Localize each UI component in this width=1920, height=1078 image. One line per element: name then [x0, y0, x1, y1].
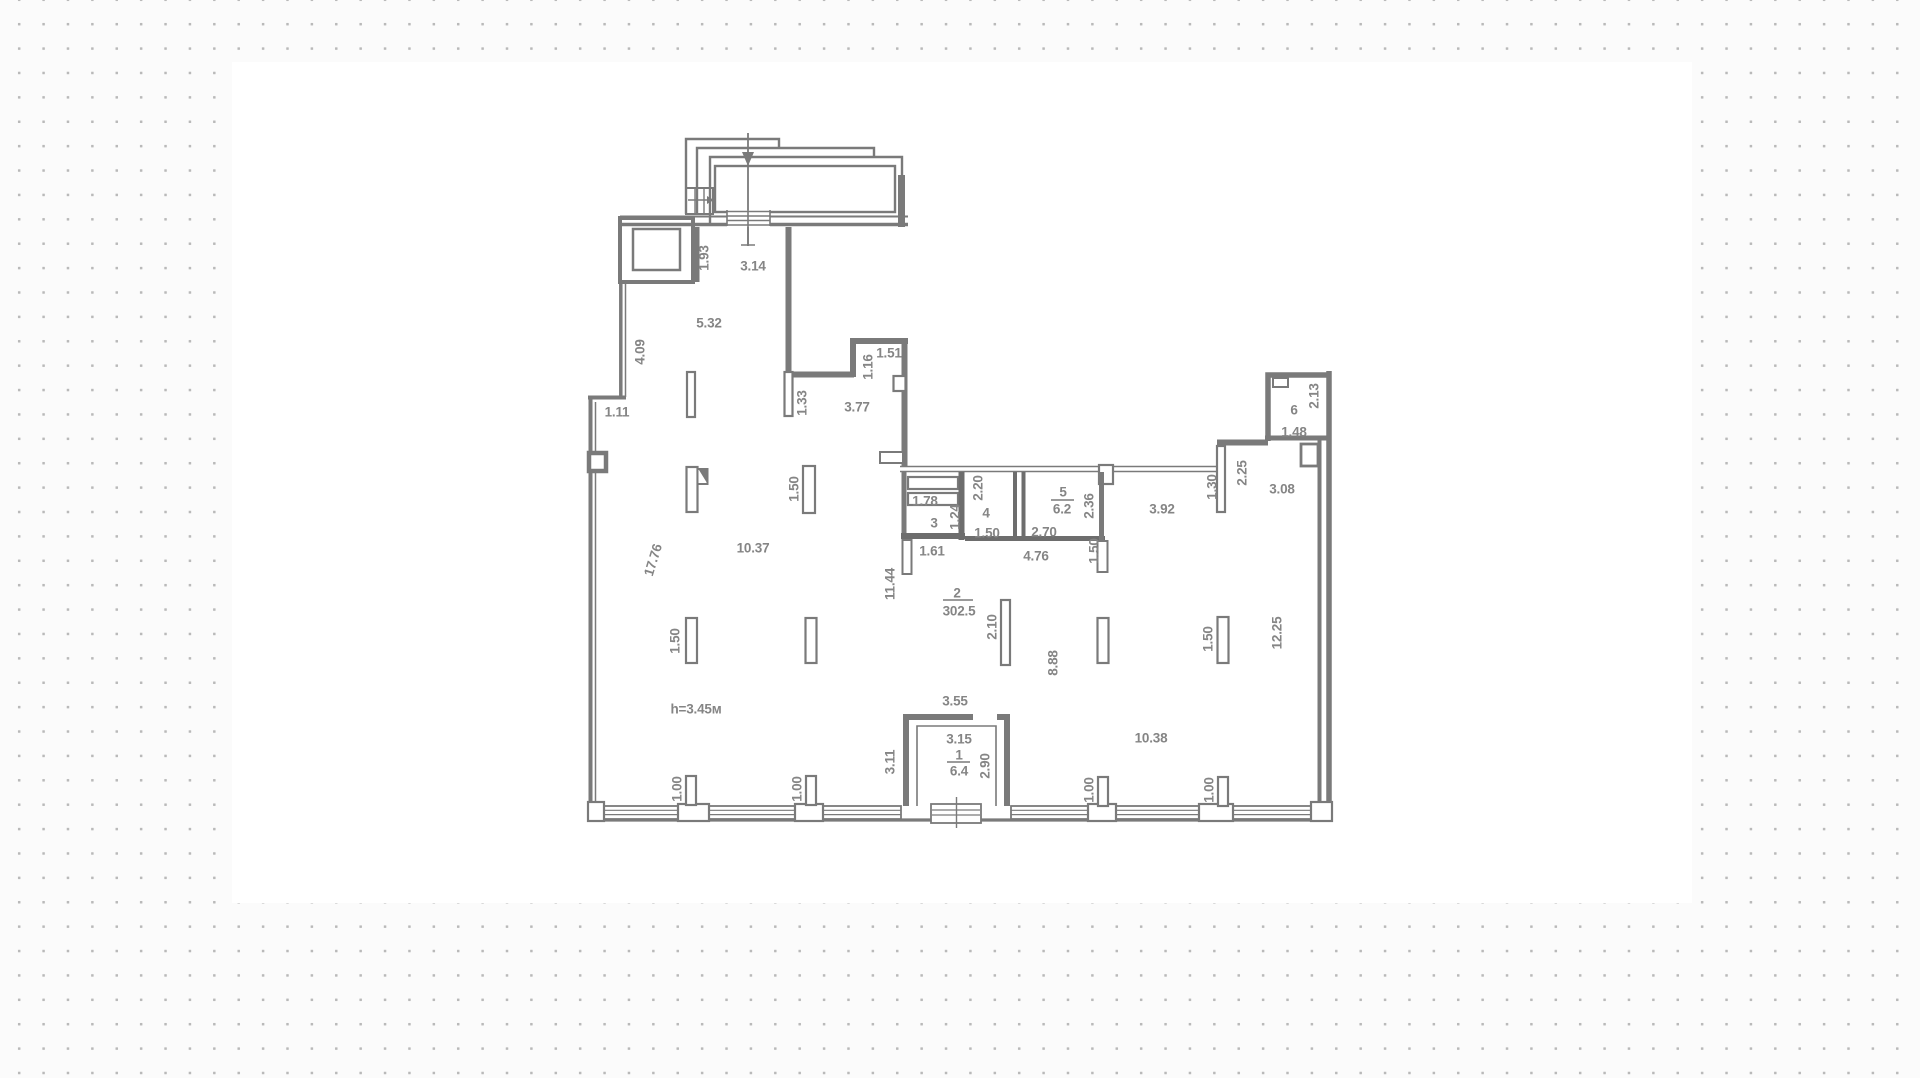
- dimension-label: 10.38: [1135, 731, 1168, 746]
- room-number-label: 2: [953, 586, 960, 601]
- dimension-label: 1.50: [1201, 626, 1216, 651]
- room-number-label: 1: [955, 748, 963, 763]
- height-label: h=3.45м: [671, 702, 722, 717]
- column: [1218, 617, 1229, 663]
- dimension-label: 2.70: [1031, 525, 1056, 540]
- top-window: [727, 210, 770, 246]
- dimension-label: 1.11: [605, 405, 630, 420]
- dimension-label: 3.11: [883, 749, 898, 774]
- dimension-label: 1.00: [1082, 777, 1097, 802]
- dimension-label: 1.93: [697, 245, 712, 271]
- entry-door: [931, 797, 981, 828]
- dimension-label: 1.50: [668, 628, 683, 653]
- dimension-label: 1.30: [1205, 474, 1220, 499]
- dimension-label: 8.88: [1046, 650, 1061, 676]
- vent-box: [1273, 378, 1288, 387]
- dimension-label: 1.24: [948, 504, 963, 530]
- column: [1098, 618, 1109, 663]
- dimension-label: 2.13: [1307, 383, 1322, 409]
- column: [687, 467, 698, 512]
- shaft-box: [620, 218, 693, 282]
- dimension-label: 1.33: [795, 390, 810, 416]
- dimension-label: 1.00: [1202, 777, 1217, 802]
- column: [903, 540, 912, 574]
- dimension-label: 11.44: [883, 567, 898, 600]
- dimension-label: 4.09: [633, 339, 648, 364]
- dimension-label: 1.16: [861, 354, 876, 380]
- room-area-label: 302.5: [943, 604, 976, 619]
- dimension-label: 10.37: [737, 541, 770, 556]
- room-number-label: 4: [982, 506, 990, 521]
- column: [806, 776, 816, 805]
- dimension-label: 3.08: [1269, 482, 1295, 497]
- column: [686, 776, 696, 805]
- dimension-label: 1.51: [876, 346, 902, 361]
- room-area-label: 1.48: [1281, 425, 1307, 440]
- dimension-label: 4.76: [1023, 549, 1049, 564]
- column: [687, 372, 695, 417]
- room-area-label: 6.4: [950, 764, 969, 779]
- room-number-label: 6: [1290, 403, 1298, 418]
- room-area-label: 6.2: [1053, 502, 1071, 517]
- dimension-label: 1.50: [787, 476, 802, 501]
- walls-layer: [588, 133, 1332, 828]
- room-number-label: 3: [930, 516, 938, 531]
- room-number-label: 5: [1059, 485, 1067, 500]
- dimension-label: 5.32: [696, 316, 721, 331]
- dimension-label: 1.50: [974, 526, 999, 541]
- dimension-label: 3.14: [740, 259, 766, 274]
- dimension-label: 1.00: [670, 776, 685, 801]
- dimension-label: 2.20: [971, 475, 986, 500]
- dimension-label: 2.90: [978, 753, 993, 778]
- dimension-label: 3.92: [1149, 502, 1174, 517]
- column: [686, 618, 697, 663]
- column: [1098, 777, 1108, 806]
- dimension-label: 1.00: [790, 776, 805, 801]
- dimension-label: 12.25: [1270, 616, 1285, 649]
- wall-anchor: [589, 453, 606, 471]
- duct-bar: [908, 477, 958, 489]
- column: [803, 466, 815, 513]
- niche-box: [1301, 444, 1318, 466]
- dimension-label: 2.36: [1082, 493, 1097, 519]
- wall-stub-133: [785, 372, 793, 416]
- column: [806, 618, 817, 663]
- entrance-canopy: [686, 133, 902, 246]
- dimension-label: 1.78: [912, 494, 938, 509]
- floor-plan-svg: 1.933.145.324.091.111.511.161.333.7717.7…: [0, 0, 1920, 1078]
- dimension-label: 2.25: [1235, 460, 1250, 486]
- dimension-label: 3.77: [844, 400, 869, 415]
- column: [1001, 600, 1010, 665]
- wall-bar: [880, 452, 903, 463]
- dimension-label: 3.55: [942, 694, 968, 709]
- dimension-label: 3.15: [946, 732, 972, 747]
- dimension-label: 17.76: [641, 541, 665, 577]
- dimension-label: 1.50: [1087, 538, 1102, 563]
- dimension-label: 2.10: [985, 614, 1000, 639]
- screenshot-root: { "background": { "dot_color": "#b9b9b9"…: [0, 0, 1920, 1078]
- dimension-label: 1.61: [919, 544, 945, 559]
- column: [1218, 777, 1228, 806]
- wall-window: [894, 376, 906, 391]
